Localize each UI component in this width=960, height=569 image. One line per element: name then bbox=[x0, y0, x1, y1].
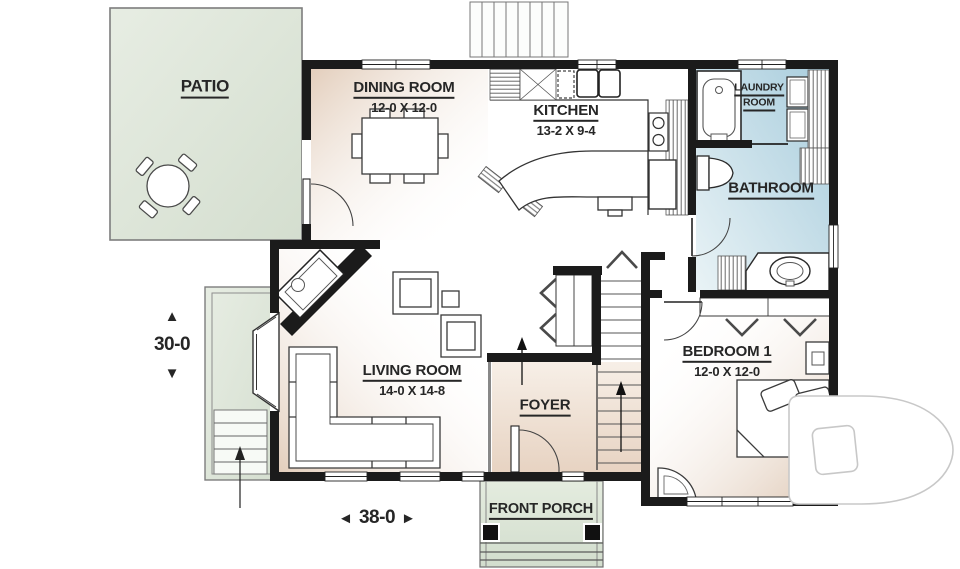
left-arrow-icon: ◄ bbox=[338, 511, 353, 526]
up-arrow-icon: ▲ bbox=[165, 309, 180, 324]
window bbox=[400, 472, 440, 481]
right-arrow-icon: ► bbox=[401, 511, 416, 526]
down-arrow-icon: ▼ bbox=[165, 366, 180, 381]
bathroom-label: BATHROOM bbox=[728, 181, 814, 200]
patio-area bbox=[110, 8, 302, 240]
window bbox=[687, 497, 793, 506]
depth-value: 30-0 bbox=[154, 334, 190, 356]
porch-post bbox=[482, 524, 499, 541]
bedroom-closet bbox=[700, 298, 835, 316]
dining-table bbox=[352, 109, 448, 183]
overall-width-dimension: ◄ 38-0 ► bbox=[338, 507, 416, 529]
patio-label: PATIO bbox=[181, 78, 229, 99]
laundry-room-label: LAUNDRY ROOM bbox=[734, 82, 784, 111]
window bbox=[738, 60, 786, 69]
sidelight-window bbox=[562, 472, 584, 481]
living-room-label: LIVING ROOM 14-0 X 14-8 bbox=[363, 363, 462, 397]
window bbox=[325, 472, 367, 481]
window bbox=[578, 60, 616, 69]
dining-room-label: DINING ROOM 12-0 X 12-0 bbox=[353, 80, 454, 114]
watermark-d-logo bbox=[789, 396, 953, 504]
bedroom1-label: BEDROOM 1 12-0 X 12-0 bbox=[682, 344, 771, 378]
laundry-counter bbox=[808, 70, 829, 148]
kitchen-sink bbox=[577, 70, 620, 97]
washer-dryer bbox=[787, 77, 808, 141]
width-value: 38-0 bbox=[359, 507, 395, 529]
refrigerator bbox=[649, 160, 676, 209]
side-table bbox=[442, 291, 459, 307]
bay-window bbox=[253, 313, 279, 411]
linen-closet bbox=[800, 148, 829, 184]
floor-plan-drawing bbox=[0, 0, 960, 569]
front-porch-label: FRONT PORCH bbox=[489, 502, 593, 520]
window bbox=[829, 225, 838, 268]
front-porch-area bbox=[480, 481, 603, 567]
armchair bbox=[393, 272, 438, 314]
porch-post bbox=[584, 524, 601, 541]
floor-plan-page: PATIO DINING ROOM 12-0 X 12-0 KITCHEN 13… bbox=[0, 0, 960, 569]
window bbox=[362, 60, 430, 69]
stove bbox=[649, 113, 668, 151]
kitchen-label: KITCHEN 13-2 X 9-4 bbox=[533, 103, 598, 137]
sidelight-window bbox=[462, 472, 484, 481]
armchair bbox=[441, 315, 481, 357]
overall-depth-dimension: ▲ 30-0 ▼ bbox=[154, 309, 190, 381]
foyer-label: FOYER bbox=[520, 398, 571, 417]
vanity-sink bbox=[718, 253, 829, 291]
patio-steps bbox=[470, 2, 568, 57]
